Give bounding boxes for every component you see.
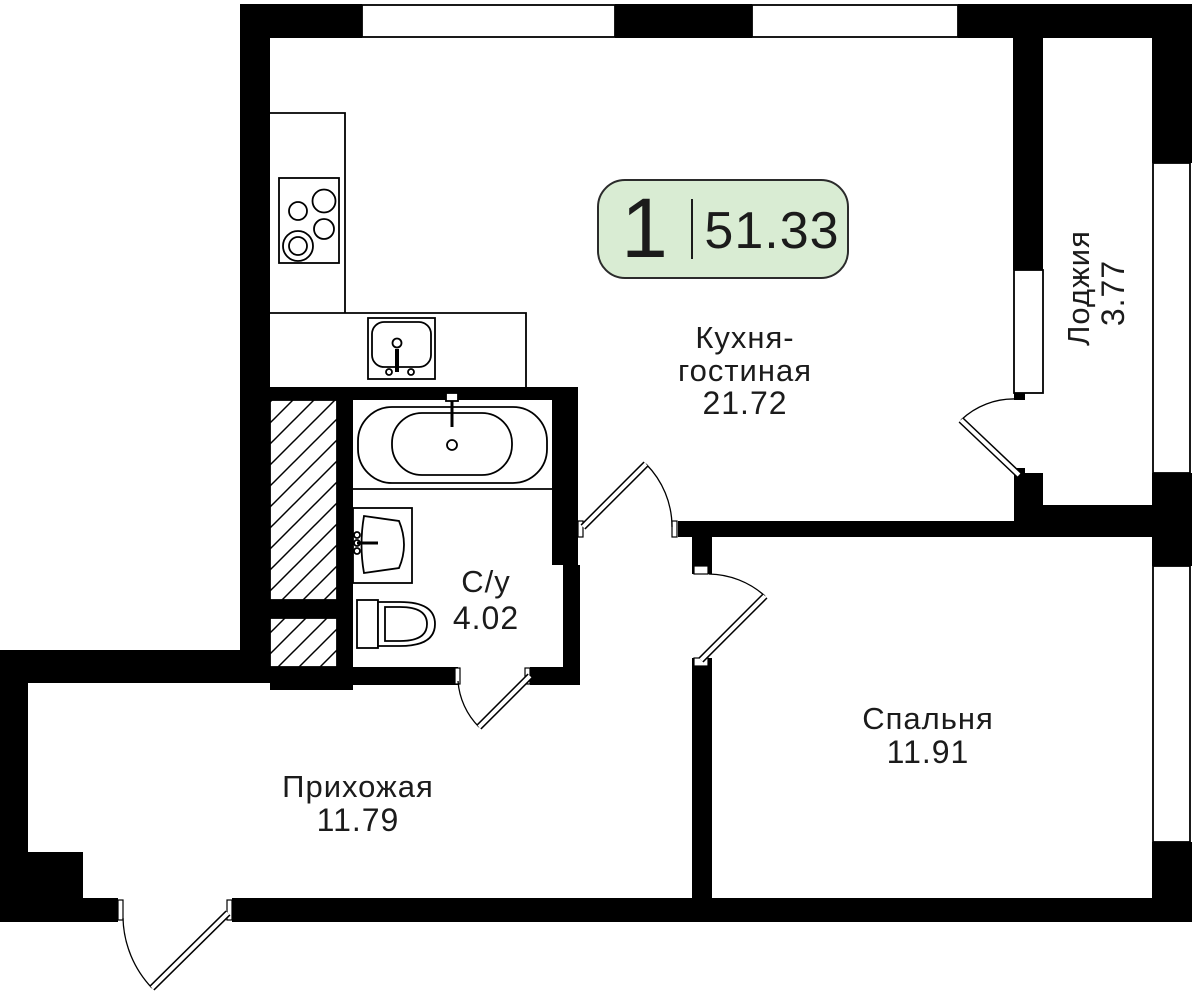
door-swing-arc xyxy=(123,918,152,988)
unit-total-area: 51.33 xyxy=(704,202,839,260)
wall xyxy=(240,4,270,683)
washbasin-icon xyxy=(353,508,412,583)
door-leaf xyxy=(479,676,530,727)
wall xyxy=(615,4,752,38)
bathroom-area: 4.02 xyxy=(453,600,519,636)
door-swing-arc xyxy=(961,399,1016,420)
wall xyxy=(0,650,28,922)
kitchen-sink-icon xyxy=(368,318,435,379)
door-leaf xyxy=(152,913,228,988)
wall xyxy=(1014,473,1043,537)
floor-plan-page: 1 51.33 Кухня- гостиная 21.72 Лоджия 3.7… xyxy=(0,0,1192,1000)
unit-badge: 1 51.33 xyxy=(598,180,848,278)
door-jamb xyxy=(118,900,123,920)
door-hinge xyxy=(694,566,708,574)
toilet-icon xyxy=(357,600,435,648)
loggia-area: 3.77 xyxy=(1095,260,1131,326)
unit-rooms-count: 1 xyxy=(621,181,669,275)
ventilation-shaft xyxy=(270,400,337,600)
door-leaf xyxy=(961,420,1019,475)
kitchen-living-label-line2: гостиная xyxy=(678,353,812,388)
kitchen-living-area: 21.72 xyxy=(702,385,787,421)
wall xyxy=(563,565,580,667)
hallway-label: Прихожая xyxy=(282,769,434,804)
wall xyxy=(958,4,1192,38)
bathroom-label: С/у xyxy=(461,564,511,599)
wall xyxy=(1152,38,1192,163)
stove-icon xyxy=(279,178,339,263)
door-leaf xyxy=(583,464,646,527)
window xyxy=(752,5,958,37)
bathtub-icon xyxy=(358,393,547,483)
bedroom-label: Спальня xyxy=(862,701,994,736)
door-jamb xyxy=(672,521,677,537)
loggia-label: Лоджия xyxy=(1061,230,1096,346)
wall xyxy=(28,852,83,898)
window xyxy=(362,5,615,37)
kitchen-fixtures xyxy=(270,113,526,387)
kitchen-living-label-line1: Кухня- xyxy=(695,320,794,355)
hallway-area: 11.79 xyxy=(317,802,400,838)
wall xyxy=(0,650,270,683)
bedroom-window xyxy=(1153,566,1190,842)
wall xyxy=(232,898,1192,922)
wall xyxy=(530,667,580,685)
loggia-window xyxy=(1153,163,1190,473)
wall xyxy=(1152,473,1192,566)
door-swing-arc xyxy=(458,681,479,727)
ventilation-shaft xyxy=(270,618,337,667)
wall xyxy=(678,521,1014,537)
wall xyxy=(552,388,578,565)
wall xyxy=(270,667,353,690)
door-leaf xyxy=(701,596,765,660)
loggia-glazing xyxy=(1014,270,1043,393)
wall xyxy=(353,667,458,685)
door-swing-arc xyxy=(646,464,672,527)
bedroom-area: 11.91 xyxy=(887,734,970,770)
door-swing-arc xyxy=(709,574,765,596)
wall xyxy=(1013,38,1043,270)
wall xyxy=(270,387,578,400)
wall xyxy=(337,400,353,667)
floor-plan: 1 51.33 Кухня- гостиная 21.72 Лоджия 3.7… xyxy=(0,0,1192,1000)
wall xyxy=(692,658,712,898)
